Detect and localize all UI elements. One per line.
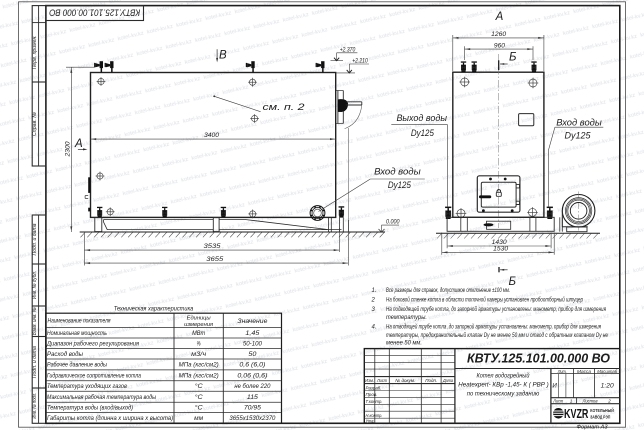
svg-text:На боковой стенке котла в обла: На боковой стенке котла в области топочн… [386,296,583,303]
svg-text:Котел водогрейный: Котел водогрейный [477,372,530,380]
svg-text:Н.контр.: Н.контр. [366,413,383,418]
svg-text:В: В [219,50,227,62]
svg-text:КОТЕЛЬНЫЙ: КОТЕЛЬНЫЙ [590,408,614,413]
svg-text:Б: Б [509,52,517,64]
svg-text:1430: 1430 [492,240,508,246]
svg-text:А: А [74,138,83,150]
svg-text:МВт: МВт [192,331,205,337]
svg-text:Утв.: Утв. [366,419,375,424]
svg-text:960: 960 [494,43,506,49]
svg-text:1260: 1260 [491,32,507,38]
svg-text:Вход воды: Вход воды [556,117,602,127]
svg-text:3400: 3400 [204,133,220,139]
svg-text:КВТУ.125.101.00.000 ВО: КВТУ.125.101.00.000 ВО [467,350,611,365]
svg-text:Выход воды: Выход воды [396,113,447,123]
svg-text:температуры, предохранительный: температуры, предохранительный клапан Dу… [386,332,609,339]
svg-text:0.000: 0.000 [386,219,400,225]
svg-text:°С: °С [195,395,204,401]
svg-text:3655: 3655 [206,257,224,263]
svg-text:Гидравлическое сопротивление к: Гидравлическое сопротивление котла [47,374,142,380]
svg-text:не более 220: не более 220 [234,384,271,390]
svg-text:МПа (кгс/см2): МПа (кгс/см2) [179,374,219,380]
svg-text:№ докум.: № докум. [395,378,415,383]
svg-text:+2.210: +2.210 [352,59,368,65]
svg-text:Единицы: Единицы [187,316,211,322]
svg-text:Листов: Листов [582,399,598,404]
svg-text:0,6 (6,0): 0,6 (6,0) [239,363,265,369]
svg-text:см. п. 2: см. п. 2 [263,102,306,113]
svg-text:Рабочее давление воды: Рабочее давление воды [47,363,108,369]
svg-text:1,45: 1,45 [245,331,260,337]
svg-text:115: 115 [247,395,259,401]
svg-text:На отводящей трубе котла ,до з: На отводящей трубе котла ,до запорной ар… [386,324,602,331]
svg-text:Вход воды: Вход воды [374,167,421,177]
svg-text:3655х1530х2370: 3655х1530х2370 [229,416,276,422]
svg-text:А: А [495,11,504,23]
svg-text:1.: 1. [372,288,377,294]
svg-text:Dy125: Dy125 [388,180,412,190]
svg-text:Подп. и дата: Подп. и дата [32,346,38,378]
svg-text:Взам. инв. №: Взам. инв. № [32,307,38,335]
svg-text:менее 50 мм.: менее 50 мм. [386,341,422,347]
svg-text:Габариты котла (длинна х ширин: Габариты котла (длинна х ширина х высота… [47,416,173,422]
svg-text:1:20: 1:20 [601,383,614,390]
svg-text:Номинальная мощность: Номинальная мощность [47,331,107,337]
svg-text:Dy125: Dy125 [411,128,435,138]
svg-text:Наименование показателя: Наименование показателя [48,319,112,325]
svg-text:Масштаб: Масштаб [597,369,617,374]
svg-text:измерения: измерения [184,322,213,328]
svg-text:Диапазон рабочего регулировани: Диапазон рабочего регулирования [46,341,140,347]
svg-text:Инв. № дубл.: Инв. № дубл. [32,271,38,299]
svg-text:+2.370: +2.370 [340,48,356,54]
svg-text:2: 2 [607,399,611,404]
svg-text:Лист: Лист [552,399,563,404]
svg-text:3535: 3535 [204,244,222,250]
svg-text:0,06 (0,6): 0,06 (0,6) [237,374,267,380]
svg-text:°С: °С [195,384,204,390]
svg-text:Лит.: Лит. [557,369,567,374]
svg-text:температуры.: температуры. [386,315,427,321]
svg-text:Heatexpert- КВр -1,45- К ( РВР: Heatexpert- КВр -1,45- К ( РВР ) [458,382,549,389]
svg-text:Формат А3: Формат А3 [577,424,608,430]
svg-text:1: 1 [570,399,573,404]
svg-text:2300: 2300 [65,141,71,158]
svg-text:Значение: Значение [237,319,268,325]
svg-text:Инв. № подл.: Инв. № подл. [32,393,38,419]
svg-text:мм: мм [194,416,203,422]
svg-text:Температура воды (вход/выход): Температура воды (вход/выход) [47,405,133,411]
svg-text:по техническому заданию: по техническому заданию [467,389,540,397]
svg-text:°С: °С [195,405,204,411]
svg-text:2: 2 [371,297,376,303]
svg-text:И: И [552,383,557,390]
svg-text:Лист: Лист [376,378,387,383]
svg-text:Максимальная рабочая температу: Максимальная рабочая температура воды [47,395,157,401]
svg-text:4.: 4. [372,325,377,331]
svg-text:Все размеры для справок, допус: Все размеры для справок, допустимое откл… [386,288,510,294]
svg-text:%: % [197,341,201,347]
svg-text:ЗАВОД РЭП: ЗАВОД РЭП [590,414,610,419]
svg-text:Масса: Масса [577,369,591,374]
svg-text:Подп.: Подп. [425,378,437,383]
svg-text:Пров.: Пров. [366,392,378,397]
svg-text:Расход воды: Расход воды [47,352,84,358]
svg-text:Подп. и дата: Подп. и дата [32,223,38,255]
svg-text:Техническая характеристика: Техническая характеристика [114,306,194,313]
svg-text:МПа (кгс/см2): МПа (кгс/см2) [179,363,219,369]
svg-text:50-100: 50-100 [243,341,263,347]
svg-text:Перв. примен.: Перв. примен. [32,35,38,69]
svg-text:1530: 1530 [493,247,509,253]
svg-text:КВТУ.125.101.00.000 ВО: КВТУ.125.101.00.000 ВО [49,8,140,18]
svg-text:70/95: 70/95 [244,405,262,411]
svg-text:м3/ч: м3/ч [191,352,206,358]
svg-text:50: 50 [248,352,257,358]
svg-text:Изм.: Изм. [365,378,374,383]
svg-text:Справ. №: Справ. № [32,112,38,136]
svg-text:Т.контр.: Т.контр. [366,399,383,404]
svg-text:KVZR: KVZR [564,406,589,421]
svg-text:Dy125: Dy125 [565,131,592,141]
svg-text:На подводящей трубе котла, до: На подводящей трубе котла, до запорной а… [386,306,607,313]
svg-text:Дата: Дата [442,378,453,383]
svg-text:Б: Б [509,276,517,288]
svg-text:Разраб.: Разраб. [366,385,382,390]
svg-text:Температура уходящих газов: Температура уходящих газов [47,384,127,390]
